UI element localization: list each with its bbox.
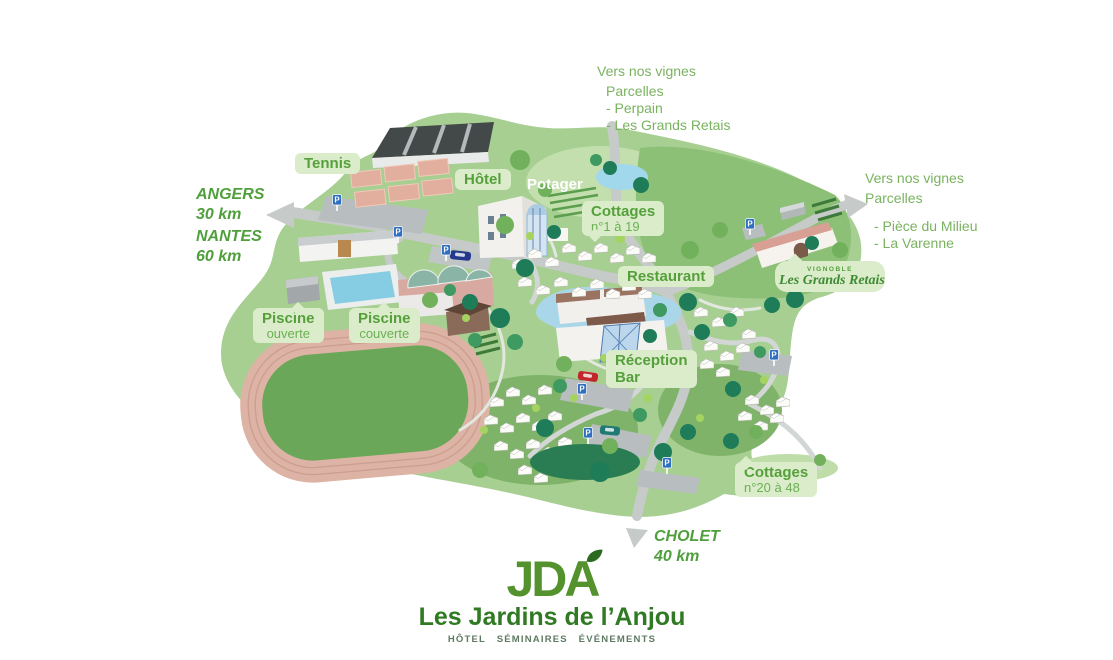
city-name: CHOLET <box>654 527 720 547</box>
vineyard-note-right: Vers nos vignes Parcelles - Pièce du Mil… <box>865 170 978 252</box>
vignoble-name: Les Grands Retais <box>779 273 881 288</box>
label-text: Réception <box>615 352 688 369</box>
note-item: - Les Grands Retais <box>606 117 731 134</box>
note-title: Vers nos vignes <box>597 63 731 80</box>
distance-nantes: NANTES 60 km <box>196 227 262 267</box>
label-text: Piscine <box>262 310 315 327</box>
label-subtext: n°20 à 48 <box>744 481 808 495</box>
note-item: - La Varenne <box>874 235 978 252</box>
jda-logo: JDA Les Jardins de l’Anjou HÔTEL SÉMINAI… <box>384 556 720 645</box>
label-text: Bar <box>615 369 688 386</box>
outdoor-pool-label: Piscine ouverte <box>253 308 324 343</box>
note-item: - Pièce du Milieu <box>874 218 978 235</box>
label-text: Cottages <box>744 464 808 481</box>
brand-name: Les Jardins de l’Anjou <box>384 603 720 631</box>
city-distance: 30 km <box>196 205 264 225</box>
reception-bar-label: Réception Bar <box>606 350 697 388</box>
leaf-icon <box>584 546 604 566</box>
hotel-label: Hôtel <box>455 169 511 190</box>
tennis-label: Tennis <box>295 153 360 174</box>
city-name: NANTES <box>196 227 262 247</box>
distance-angers: ANGERS 30 km <box>196 185 264 225</box>
west-shed-building <box>286 276 320 304</box>
label-text: Restaurant <box>627 268 705 285</box>
label-text: Tennis <box>304 155 351 172</box>
cottages-north-label: Cottages n°1 à 19 <box>582 201 664 236</box>
arrow-west-icon <box>266 202 294 228</box>
label-text: Cottages <box>591 203 655 220</box>
potager-label: Potager <box>527 176 583 193</box>
note-subtitle: Parcelles <box>865 190 978 207</box>
vineyard-note-top: Vers nos vignes Parcelles - Perpain - Le… <box>597 63 731 134</box>
brand-tagline: HÔTEL SÉMINAIRES ÉVÉNEMENTS <box>384 634 720 645</box>
arrow-south-icon <box>626 528 648 548</box>
vignoble-les-grands-retais-logo: VIGNOBLE Les Grands Retais <box>775 261 885 292</box>
restaurant-label: Restaurant <box>618 266 714 287</box>
label-text: Hôtel <box>464 171 502 188</box>
site-map-page: P <box>0 0 1113 660</box>
label-subtext: ouverte <box>262 327 315 341</box>
city-distance: 60 km <box>196 247 262 267</box>
label-subtext: couverte <box>358 327 411 341</box>
label-subtext: n°1 à 19 <box>591 220 655 234</box>
note-subtitle: Parcelles <box>606 83 731 100</box>
note-item: - Perpain <box>606 100 731 117</box>
outdoor-pool <box>322 264 402 310</box>
city-name: ANGERS <box>196 185 264 205</box>
covered-pool-label: Piscine couverte <box>349 308 420 343</box>
note-title: Vers nos vignes <box>865 170 978 187</box>
cottages-south-label: Cottages n°20 à 48 <box>735 462 817 497</box>
